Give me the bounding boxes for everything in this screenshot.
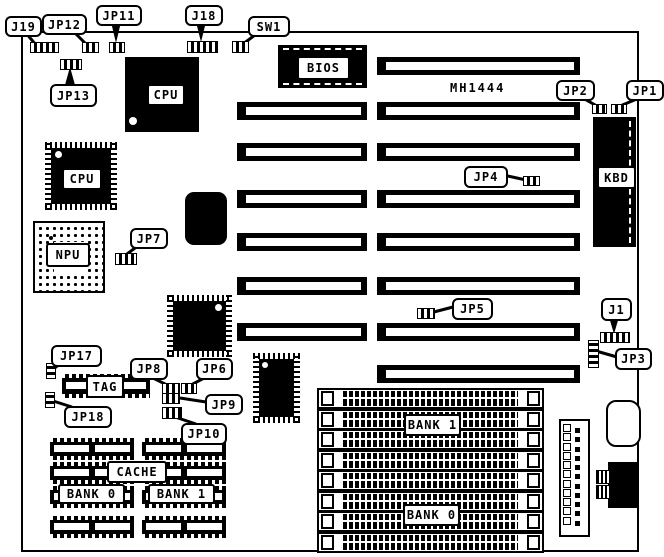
callout-j1: J1 (601, 298, 632, 321)
jumper-jp11 (109, 42, 125, 53)
simm-socket-1 (317, 388, 544, 409)
din-plug-2 (596, 485, 612, 499)
simm-latch-r (527, 412, 540, 427)
simm-latch-l (321, 453, 334, 468)
power-pin (575, 428, 580, 433)
callout-jp11: JP11 (96, 5, 142, 26)
simm-band-divider (343, 397, 518, 399)
jumper-jp2 (592, 104, 607, 114)
isa-slot-long-5 (377, 233, 580, 251)
jumper-jp5 (417, 308, 435, 319)
simm-latch-r (527, 391, 540, 406)
power-pin-hole (563, 433, 571, 441)
isa-slot-short-3 (237, 143, 367, 161)
simm-band-divider (343, 438, 518, 440)
cache-dip-chip-r4c2 (142, 516, 226, 538)
isa-slot-short-5 (237, 233, 367, 251)
isa-slot-short-4 (237, 190, 367, 208)
callout-jp9: JP9 (205, 394, 243, 415)
jumper-jp18 (45, 392, 55, 408)
cpu-qfp-label: CPU (62, 168, 102, 190)
isa-slot-short-2 (237, 102, 367, 120)
simm-latch-l (321, 432, 334, 447)
board-model-label: MH1444 (450, 81, 505, 95)
isa-slot-long-7 (377, 323, 580, 341)
simm-latch-l (321, 391, 334, 406)
simm-socket-8 (317, 532, 544, 553)
tag-ram-label: TAG (86, 375, 124, 398)
isa-slot-long-1 (377, 57, 580, 75)
keyboard-din-connector (608, 462, 637, 508)
battery-outline (606, 400, 641, 447)
power-pin-hole (563, 498, 571, 506)
simm-latch-r (527, 535, 540, 550)
pin1-dot (49, 236, 53, 240)
power-pin-hole (563, 424, 571, 432)
isa-slot-long-6 (377, 277, 580, 295)
simm-band-divider (343, 500, 518, 502)
power-pin (575, 437, 580, 442)
power-pin (575, 502, 580, 507)
callout-jp3: JP3 (615, 348, 652, 370)
callout-jp6: JP6 (196, 358, 233, 380)
bios-chip-label: BIOS (297, 56, 350, 80)
callout-jp5: JP5 (452, 298, 493, 320)
power-pin-hole (563, 480, 571, 488)
jumper-jp1 (611, 104, 627, 114)
power-pin-hole (563, 507, 571, 515)
simm-latch-r (527, 494, 540, 509)
isa-slot-long-2 (377, 102, 580, 120)
cache-dip-chip-r4c1 (50, 516, 134, 538)
power-pin (575, 521, 580, 526)
pin1-dot (215, 304, 222, 311)
callout-jp18: JP18 (64, 406, 112, 428)
motherboard-diagram: MH1444 BANK 1BANK 0CACHEBANK 0BANK 1CPUB… (0, 0, 664, 557)
jumper-jp10 (162, 407, 182, 419)
simm-latch-r (527, 453, 540, 468)
chip-rounded (185, 192, 227, 245)
jumper-jp6 (181, 383, 197, 394)
power-pin-hole (563, 452, 571, 460)
cache-label: BANK 0 (58, 484, 125, 504)
simm-latch-l (321, 535, 334, 550)
simm-socket-4 (317, 450, 544, 471)
jumper-jp9 (162, 393, 180, 404)
power-pin (575, 474, 580, 479)
power-pin (575, 465, 580, 470)
simm-bank-label: BANK 0 (403, 504, 460, 526)
callout-sw1: SW1 (248, 16, 290, 37)
power-pin (575, 493, 580, 498)
simm-latch-r (527, 432, 540, 447)
jumper-jp7 (115, 253, 137, 265)
simm-latch-l (321, 514, 334, 529)
isa-slot-short-6 (237, 277, 367, 295)
cache-dip-chip-r1c1 (50, 438, 134, 460)
power-pin-hole (563, 517, 571, 525)
npu-socket-label: NPU (46, 243, 90, 267)
isa-slot-short-7 (237, 323, 367, 341)
jumper-j18 (187, 41, 218, 53)
callout-jp17: JP17 (51, 345, 102, 367)
pin1-dot (262, 362, 268, 368)
simm-bank-label: BANK 1 (404, 414, 461, 436)
simm-band-divider (343, 479, 518, 481)
din-plug-1 (596, 470, 612, 484)
callout-jp13: JP13 (50, 84, 97, 107)
power-pin-hole (563, 470, 571, 478)
simm-latch-l (321, 494, 334, 509)
isa-slot-long-3 (377, 143, 580, 161)
pin1-dot (129, 117, 137, 125)
callout-jp8: JP8 (130, 358, 168, 380)
simm-band-divider (343, 541, 518, 543)
callout-j18: J18 (185, 5, 223, 26)
callout-jp4: JP4 (464, 166, 508, 188)
bios-dashed-line (283, 48, 362, 50)
simm-latch-l (321, 412, 334, 427)
chip-qfp-small (253, 353, 300, 423)
jumper-jp3 (588, 340, 599, 368)
isa-slot-long-4 (377, 190, 580, 208)
cache-label: CACHE (107, 461, 167, 483)
bios-dashed-line (283, 83, 362, 85)
power-pin (575, 484, 580, 489)
jumper-jp13 (60, 59, 82, 70)
kbd-controller-label: KBD (597, 166, 636, 189)
callout-j19: J19 (5, 16, 42, 37)
jumper-j19 (30, 42, 59, 53)
power-pin-hole (563, 443, 571, 451)
isa-slot-long-8 (377, 365, 580, 383)
power-pin (575, 456, 580, 461)
callout-jp10: JP10 (181, 423, 227, 445)
chip-qfp-mid (167, 295, 232, 357)
callout-jp1: JP1 (626, 80, 664, 101)
power-pin (575, 511, 580, 516)
callout-jp7: JP7 (130, 228, 168, 249)
power-pin (575, 447, 580, 452)
jumper-sw1 (232, 41, 249, 53)
simm-latch-r (527, 473, 540, 488)
power-pin-hole (563, 461, 571, 469)
cache-label: BANK 1 (148, 484, 215, 504)
power-pin-hole (563, 489, 571, 497)
jumper-jp4 (523, 176, 540, 186)
pin1-dot (55, 151, 62, 158)
callout-jp12: JP12 (42, 14, 87, 35)
simm-socket-5 (317, 470, 544, 491)
simm-latch-r (527, 514, 540, 529)
simm-latch-l (321, 473, 334, 488)
jumper-jp12 (82, 42, 99, 53)
simm-band-divider (343, 459, 518, 461)
callout-jp2: JP2 (556, 80, 595, 101)
power-connector (559, 419, 590, 537)
cpu-chip-top-label: CPU (147, 84, 185, 106)
jumper-j1 (600, 332, 630, 343)
